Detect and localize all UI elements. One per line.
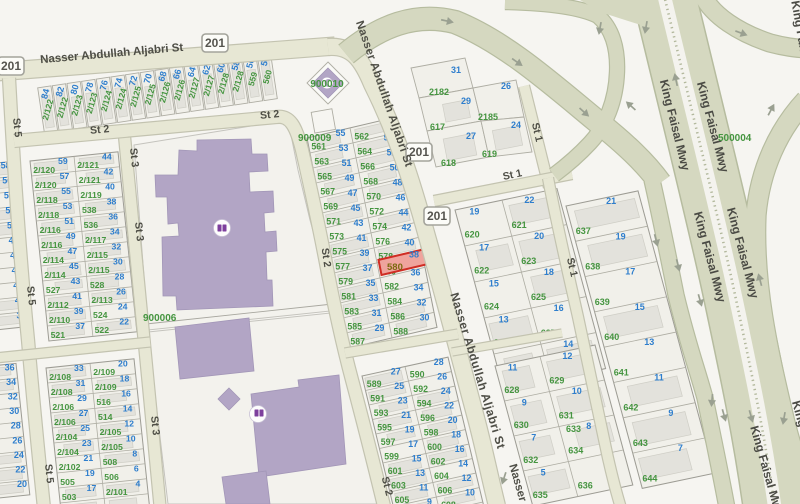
svg-text:13: 13: [499, 314, 509, 324]
svg-text:642: 642: [623, 403, 638, 413]
svg-text:34: 34: [110, 226, 120, 236]
svg-text:53: 53: [339, 143, 349, 153]
svg-text:25: 25: [394, 381, 404, 391]
svg-text:900009: 900009: [298, 133, 332, 144]
svg-text:900010: 900010: [310, 79, 344, 90]
svg-text:19: 19: [616, 231, 626, 241]
svg-text:33: 33: [74, 363, 84, 373]
svg-text:32: 32: [112, 241, 122, 251]
svg-text:29: 29: [461, 96, 471, 106]
svg-text:St 5: St 5: [10, 117, 24, 138]
svg-text:585: 585: [347, 322, 362, 332]
svg-text:628: 628: [504, 385, 519, 395]
svg-text:51: 51: [342, 158, 352, 168]
svg-text:563: 563: [314, 157, 329, 167]
svg-text:572: 572: [369, 206, 384, 216]
svg-text:47: 47: [68, 246, 78, 256]
svg-text:592: 592: [413, 384, 428, 394]
svg-text:9: 9: [668, 408, 673, 418]
svg-text:500004: 500004: [718, 133, 752, 144]
svg-text:30: 30: [9, 406, 19, 416]
svg-text:38: 38: [107, 196, 117, 206]
svg-text:32: 32: [417, 298, 427, 308]
svg-text:606: 606: [438, 486, 453, 496]
svg-text:25: 25: [80, 423, 90, 433]
svg-text:639: 639: [595, 297, 610, 307]
svg-text:14: 14: [458, 459, 468, 469]
svg-text:16: 16: [121, 388, 131, 398]
svg-text:2/119: 2/119: [80, 190, 101, 200]
svg-text:622: 622: [474, 266, 489, 276]
svg-text:631: 631: [559, 410, 574, 420]
svg-text:2/116: 2/116: [40, 225, 61, 235]
svg-text:638: 638: [585, 262, 600, 272]
svg-text:24: 24: [511, 120, 521, 130]
svg-text:2/116: 2/116: [41, 240, 62, 250]
svg-text:St 5: St 5: [24, 285, 38, 306]
svg-text:42: 42: [104, 166, 114, 176]
svg-text:2/115: 2/115: [87, 250, 108, 260]
svg-text:53: 53: [63, 201, 73, 211]
svg-text:562: 562: [354, 131, 369, 141]
svg-text:21: 21: [84, 453, 94, 463]
svg-text:31: 31: [372, 308, 382, 318]
svg-text:22: 22: [15, 465, 25, 475]
svg-text:47: 47: [348, 188, 358, 198]
svg-text:17: 17: [479, 242, 489, 252]
svg-text:31: 31: [76, 378, 86, 388]
svg-text:527: 527: [46, 285, 61, 295]
svg-text:32: 32: [8, 392, 18, 402]
svg-text:621: 621: [512, 220, 527, 230]
svg-text:14: 14: [563, 339, 573, 349]
svg-text:505: 505: [60, 477, 75, 487]
svg-text:2/117: 2/117: [85, 235, 106, 245]
svg-text:39: 39: [360, 248, 370, 258]
svg-text:51: 51: [64, 216, 74, 226]
svg-text:564: 564: [357, 146, 372, 156]
svg-text:8: 8: [586, 421, 591, 431]
svg-text:15: 15: [635, 302, 645, 312]
svg-text:22: 22: [119, 316, 129, 326]
svg-text:641: 641: [614, 367, 629, 377]
svg-text:605: 605: [395, 495, 410, 504]
svg-text:55: 55: [336, 128, 346, 138]
svg-text:635: 635: [533, 490, 548, 500]
svg-text:28: 28: [11, 421, 21, 431]
svg-text:636: 636: [578, 480, 593, 490]
svg-text:201: 201: [1, 59, 21, 73]
svg-text:604: 604: [434, 471, 449, 481]
svg-text:2/108: 2/108: [49, 372, 71, 382]
svg-text:579: 579: [338, 277, 353, 287]
svg-text:St 3: St 3: [132, 221, 146, 242]
svg-text:2/121: 2/121: [79, 175, 101, 185]
svg-text:570: 570: [366, 191, 381, 201]
svg-text:634: 634: [568, 445, 583, 455]
svg-text:18: 18: [451, 430, 461, 440]
svg-text:577: 577: [335, 262, 350, 272]
svg-text:9: 9: [522, 398, 527, 408]
svg-text:619: 619: [482, 149, 497, 159]
svg-text:19: 19: [405, 425, 415, 435]
svg-text:St 3: St 3: [127, 147, 141, 168]
svg-text:26: 26: [437, 372, 447, 382]
svg-text:590: 590: [410, 370, 425, 380]
svg-text:581: 581: [341, 292, 356, 302]
svg-text:St 2: St 2: [90, 123, 110, 137]
svg-text:40: 40: [105, 181, 115, 191]
svg-text:2/106: 2/106: [54, 417, 76, 427]
svg-text:2/118: 2/118: [36, 195, 57, 205]
svg-text:38: 38: [409, 250, 419, 260]
svg-text:17: 17: [625, 267, 635, 277]
svg-text:637: 637: [576, 226, 591, 236]
svg-text:37: 37: [75, 321, 85, 331]
svg-text:41: 41: [357, 233, 367, 243]
svg-text:632: 632: [523, 455, 538, 465]
svg-text:35: 35: [366, 278, 376, 288]
svg-text:528: 528: [90, 280, 105, 290]
svg-text:34: 34: [414, 283, 424, 293]
svg-text:12: 12: [124, 418, 134, 428]
svg-text:46: 46: [396, 193, 406, 203]
svg-text:623: 623: [521, 256, 536, 266]
svg-text:591: 591: [370, 394, 385, 404]
svg-text:44: 44: [399, 208, 409, 218]
svg-text:20: 20: [448, 415, 458, 425]
svg-text:33: 33: [369, 293, 379, 303]
svg-text:15: 15: [412, 454, 422, 464]
svg-text:24: 24: [118, 301, 128, 311]
svg-text:575: 575: [332, 247, 347, 257]
svg-text:2/104: 2/104: [56, 432, 78, 442]
svg-text:43: 43: [354, 218, 364, 228]
svg-text:2/120: 2/120: [33, 165, 55, 175]
svg-text:16: 16: [455, 444, 465, 454]
svg-text:45: 45: [351, 203, 361, 213]
svg-text:29: 29: [375, 323, 385, 333]
svg-text:34: 34: [6, 377, 16, 387]
svg-text:573: 573: [329, 232, 344, 242]
svg-text:59: 59: [58, 156, 68, 166]
svg-text:21: 21: [606, 196, 616, 206]
svg-text:29: 29: [77, 393, 87, 403]
svg-text:43: 43: [71, 276, 81, 286]
svg-text:2/114: 2/114: [44, 270, 65, 280]
svg-text:595: 595: [377, 423, 392, 433]
svg-text:594: 594: [417, 399, 432, 409]
svg-text:600: 600: [427, 442, 442, 452]
svg-text:12: 12: [562, 351, 572, 361]
svg-text:27: 27: [466, 131, 476, 141]
svg-text:2/114: 2/114: [43, 255, 64, 265]
svg-text:26: 26: [12, 435, 22, 445]
svg-text:30: 30: [113, 256, 123, 266]
svg-text:2/115: 2/115: [88, 265, 109, 275]
svg-text:St 3: St 3: [148, 415, 162, 436]
svg-text:508: 508: [103, 457, 118, 467]
svg-text:26: 26: [501, 81, 511, 91]
svg-text:2/121: 2/121: [77, 160, 99, 170]
svg-text:9: 9: [427, 497, 432, 504]
svg-text:2/104: 2/104: [57, 447, 79, 457]
svg-text:11: 11: [419, 483, 428, 493]
svg-text:10: 10: [126, 433, 136, 443]
svg-text:643: 643: [633, 438, 648, 448]
svg-text:15: 15: [489, 278, 499, 288]
svg-text:2/105: 2/105: [101, 442, 123, 452]
svg-text:620: 620: [465, 230, 480, 240]
svg-text:503: 503: [62, 492, 77, 502]
svg-text:20: 20: [17, 479, 27, 489]
svg-text:524: 524: [93, 310, 108, 320]
svg-text:602: 602: [431, 457, 446, 467]
svg-text:21: 21: [401, 410, 411, 420]
svg-text:2/110: 2/110: [49, 315, 70, 325]
svg-text:617: 617: [430, 122, 445, 132]
svg-text:55: 55: [61, 186, 71, 196]
svg-text:2/105: 2/105: [100, 427, 122, 437]
svg-text:2182: 2182: [429, 87, 449, 97]
svg-text:42: 42: [402, 223, 412, 233]
svg-text:2/106: 2/106: [52, 402, 74, 412]
svg-text:597: 597: [381, 437, 396, 447]
svg-text:2/112: 2/112: [47, 300, 68, 310]
svg-text:624: 624: [484, 302, 499, 312]
svg-text:2/109: 2/109: [93, 367, 115, 377]
svg-text:522: 522: [95, 325, 110, 335]
svg-text:24: 24: [441, 386, 451, 396]
svg-text:17: 17: [408, 439, 418, 449]
svg-text:580: 580: [387, 262, 403, 273]
svg-text:St 5: St 5: [42, 463, 56, 484]
svg-text:49: 49: [345, 173, 355, 183]
svg-text:41: 41: [72, 291, 82, 301]
svg-text:12: 12: [462, 473, 472, 483]
svg-text:40: 40: [405, 238, 415, 248]
svg-text:568: 568: [363, 176, 378, 186]
svg-text:17: 17: [87, 483, 97, 493]
svg-text:18: 18: [544, 267, 554, 277]
svg-text:2/101: 2/101: [106, 487, 128, 497]
svg-text:45: 45: [69, 261, 79, 271]
svg-text:27: 27: [391, 367, 401, 377]
svg-text:28: 28: [434, 357, 444, 367]
svg-text:26: 26: [116, 286, 126, 296]
svg-text:596: 596: [420, 413, 435, 423]
svg-text:16: 16: [554, 303, 564, 313]
svg-text:31: 31: [451, 65, 461, 75]
svg-text:567: 567: [320, 187, 335, 197]
svg-text:13: 13: [644, 337, 654, 347]
svg-text:18: 18: [120, 373, 130, 383]
svg-text:521: 521: [51, 330, 66, 340]
svg-text:516: 516: [96, 397, 111, 407]
svg-text:2/109: 2/109: [95, 382, 117, 392]
svg-text:644: 644: [642, 473, 657, 483]
svg-text:6: 6: [134, 463, 139, 473]
svg-text:2/102: 2/102: [59, 462, 81, 472]
svg-text:36: 36: [411, 268, 421, 278]
svg-text:10: 10: [465, 488, 475, 498]
svg-text:4: 4: [135, 478, 140, 488]
svg-text:2/108: 2/108: [51, 387, 73, 397]
svg-text:566: 566: [360, 161, 375, 171]
svg-text:586: 586: [390, 311, 405, 321]
svg-text:19: 19: [85, 468, 95, 478]
svg-text:20: 20: [534, 231, 544, 241]
svg-text:36: 36: [5, 362, 15, 372]
svg-text:22: 22: [524, 195, 534, 205]
svg-text:506: 506: [104, 472, 119, 482]
svg-text:20: 20: [118, 358, 128, 368]
svg-text:8: 8: [132, 448, 137, 458]
svg-text:23: 23: [398, 396, 408, 406]
svg-text:576: 576: [375, 236, 390, 246]
svg-text:589: 589: [367, 379, 382, 389]
svg-text:640: 640: [604, 332, 619, 342]
svg-text:22: 22: [444, 401, 454, 411]
svg-text:584: 584: [387, 296, 402, 306]
svg-text:598: 598: [424, 428, 439, 438]
svg-text:571: 571: [326, 217, 341, 227]
svg-text:582: 582: [384, 281, 399, 291]
svg-text:633: 633: [566, 424, 581, 434]
svg-text:201: 201: [427, 209, 447, 223]
svg-text:900006: 900006: [143, 313, 177, 324]
svg-text:19: 19: [469, 206, 479, 216]
svg-text:2185: 2185: [478, 112, 498, 122]
svg-text:24: 24: [14, 450, 24, 460]
svg-text:625: 625: [531, 292, 546, 302]
svg-text:11: 11: [654, 373, 664, 383]
svg-text:10: 10: [572, 386, 582, 396]
svg-text:14: 14: [123, 403, 133, 413]
svg-text:49: 49: [66, 231, 76, 241]
svg-text:5: 5: [541, 468, 546, 478]
svg-text:23: 23: [82, 438, 92, 448]
svg-text:588: 588: [393, 326, 408, 336]
svg-text:30: 30: [420, 313, 430, 323]
svg-text:2/113: 2/113: [91, 295, 112, 305]
svg-text:608: 608: [441, 500, 456, 504]
svg-text:630: 630: [514, 420, 529, 430]
svg-text:536: 536: [84, 220, 99, 230]
svg-text:583: 583: [344, 307, 359, 317]
svg-text:574: 574: [372, 221, 387, 231]
svg-text:57: 57: [60, 171, 70, 181]
svg-text:27: 27: [79, 408, 89, 418]
svg-text:565: 565: [317, 172, 332, 182]
svg-text:2/118: 2/118: [38, 210, 59, 220]
svg-text:7: 7: [531, 433, 536, 443]
svg-text:2/120: 2/120: [35, 180, 57, 190]
svg-text:618: 618: [441, 158, 456, 168]
svg-text:44: 44: [102, 151, 112, 161]
svg-text:13: 13: [415, 468, 425, 478]
svg-text:514: 514: [98, 412, 113, 422]
svg-text:201: 201: [205, 36, 225, 50]
svg-text:28: 28: [115, 271, 125, 281]
svg-text:569: 569: [323, 202, 338, 212]
svg-text:St 2: St 2: [260, 108, 280, 122]
svg-text:7: 7: [678, 443, 683, 453]
svg-text:37: 37: [363, 263, 373, 273]
svg-text:629: 629: [549, 375, 564, 385]
svg-text:593: 593: [374, 408, 389, 418]
svg-text:599: 599: [384, 452, 399, 462]
svg-text:11: 11: [508, 363, 518, 373]
svg-text:36: 36: [108, 211, 118, 221]
svg-text:538: 538: [82, 205, 97, 215]
svg-text:39: 39: [74, 306, 84, 316]
